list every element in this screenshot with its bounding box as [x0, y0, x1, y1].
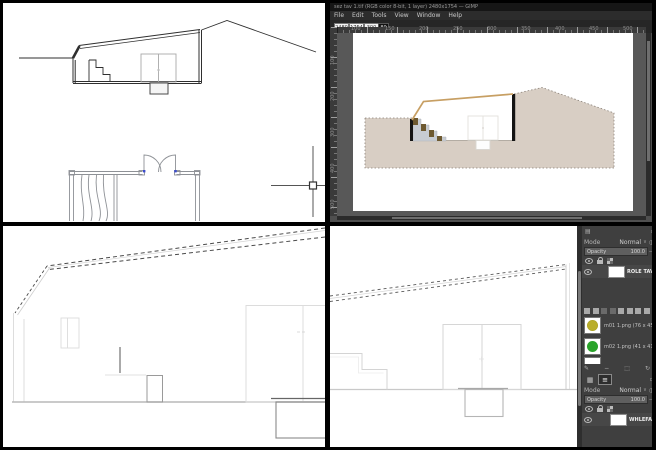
- brush-item-2[interactable]: m02 1.png (41 x 41): [582, 336, 652, 357]
- small-block: [147, 376, 163, 403]
- hscroll-thumb[interactable]: [392, 217, 582, 219]
- colored-section-drawing: [353, 33, 633, 211]
- vscroll-thumb[interactable]: [647, 41, 650, 161]
- layer-row-1[interactable]: ROLE TAV 1.p: [582, 265, 652, 278]
- brush-item-1[interactable]: m01 1.png (76 x 45): [582, 315, 652, 336]
- zoomed-canvas[interactable]: [330, 226, 577, 447]
- opacity-value: 100.0: [631, 397, 645, 403]
- ruler-label: 200: [419, 27, 429, 32]
- ruler-label: 300: [487, 27, 497, 32]
- section-outline: [19, 21, 316, 84]
- plan-wall-left: [70, 172, 74, 222]
- layer-visibility-icon[interactable]: [584, 268, 592, 275]
- wall-niche: [61, 318, 79, 348]
- lower-layer-icon[interactable]: [610, 308, 616, 314]
- dock-header: ▤ ▫: [582, 226, 652, 237]
- mode-row-2: Mode Normal ∨ ◑: [582, 385, 652, 395]
- view-tabs: ▦ ≡ ▫: [582, 374, 652, 385]
- ruler-label: 250: [453, 27, 463, 32]
- zoom-building-lines: [330, 263, 577, 417]
- door-outline: [468, 116, 498, 140]
- new-layer-icon[interactable]: [584, 308, 590, 314]
- ruler-label: 100: [330, 55, 336, 65]
- menu-tools[interactable]: Tools: [368, 11, 391, 20]
- lock-icon[interactable]: [597, 260, 603, 264]
- menu-file[interactable]: File: [330, 11, 348, 20]
- open-as-image-icon[interactable]: ⬚: [624, 365, 630, 373]
- menu-view[interactable]: View: [390, 11, 412, 20]
- right-wall: [199, 30, 202, 83]
- plan-view: [69, 155, 200, 221]
- outline-drawing: [3, 226, 325, 447]
- mode-dropdown[interactable]: Normal: [619, 387, 641, 394]
- zoomed-drawing: [330, 226, 577, 447]
- mode-row-1: Mode Normal ∨ ◑: [582, 237, 652, 247]
- ruler-label: 300: [330, 127, 336, 137]
- entry-step: [150, 83, 168, 94]
- opacity-label: Opacity: [587, 249, 606, 255]
- panel-menu-icon[interactable]: ▫: [651, 228, 652, 236]
- canvas-area[interactable]: [337, 33, 646, 216]
- entry-step-rect: [276, 402, 325, 438]
- opacity-decrease-icon[interactable]: −: [648, 248, 652, 255]
- door-rect: [246, 306, 325, 403]
- brush-name: m02 1.png (41 x 41): [604, 344, 652, 350]
- ruler-label: 400: [330, 163, 336, 173]
- roof-line-outer: [79, 30, 200, 46]
- ruler-label: 500: [623, 27, 633, 32]
- section-stairs: [89, 60, 110, 82]
- new-group-icon[interactable]: [593, 308, 599, 314]
- entry-step-zoom: [465, 390, 503, 417]
- layer-row-2[interactable]: WHLEFAX 1.p: [582, 413, 652, 426]
- building-light-lines: [12, 306, 325, 439]
- four-view-architecture-workspace: { "colors": { "ground_tan": "#d8cec4", "…: [0, 0, 656, 450]
- cad-view: [3, 3, 325, 222]
- opacity-slider[interactable]: Opacity 100.0: [584, 247, 648, 256]
- layer-action-buttons: [582, 306, 652, 315]
- dock-empty-space: [582, 278, 652, 306]
- roof-dashed-zoom: [330, 265, 566, 302]
- layer-visibility-icon[interactable]: [584, 416, 592, 423]
- delete-layer-icon[interactable]: [644, 308, 650, 314]
- left-bent-wall: [73, 46, 80, 58]
- refresh-brushes-icon[interactable]: ↻: [645, 365, 650, 373]
- cad-drawing: [3, 3, 325, 222]
- ruler-label: 100: [351, 27, 361, 32]
- menu-help[interactable]: Help: [444, 11, 466, 20]
- layers-panel-icon[interactable]: ▤: [585, 228, 591, 236]
- crosshair-cursor: [271, 146, 325, 217]
- menu-window[interactable]: Window: [413, 11, 445, 20]
- plan-wall-right: [196, 172, 200, 222]
- layer-thumbnail: [610, 414, 627, 426]
- tab-menu-icon[interactable]: ▫: [650, 376, 652, 384]
- floor-line: [73, 82, 202, 84]
- duplicate-layer-icon[interactable]: [618, 308, 624, 314]
- image-editor-window: sez tav 1.tif (RGB color 8-bit, 1 layer)…: [330, 3, 652, 222]
- ruler-label: 200: [330, 91, 336, 101]
- entry-step-white: [476, 141, 490, 150]
- layer-name: ROLE TAV 1.p: [627, 269, 652, 275]
- list-view-tab[interactable]: ≡: [598, 374, 612, 385]
- grid-view-tab[interactable]: ▦: [584, 375, 596, 384]
- visibility-icon[interactable]: [585, 405, 593, 412]
- plan-wall-left-run: [69, 172, 143, 175]
- window-title: sez tav 1.tif (RGB color 8-bit, 1 layer)…: [330, 3, 652, 11]
- plan-wall-mid: [114, 175, 117, 222]
- opacity-value: 100.0: [631, 249, 645, 255]
- hill-peak-line: [202, 21, 317, 53]
- brush-name: m01 1.png (76 x 45): [604, 323, 652, 329]
- menu-bar: File Edit Tools View Window Help: [330, 11, 652, 20]
- lock-alpha-icon[interactable]: [607, 406, 613, 412]
- pickbox: [310, 182, 317, 189]
- edit-brush-icon[interactable]: ✎: [584, 365, 589, 373]
- raise-layer-icon[interactable]: [601, 308, 607, 314]
- opacity-slider[interactable]: Opacity 100.0: [584, 395, 648, 404]
- hinge-dot-right: [174, 170, 176, 172]
- layer-thumbnail: [608, 266, 625, 278]
- opacity-decrease-icon[interactable]: −: [648, 396, 652, 403]
- visibility-icon[interactable]: [585, 257, 593, 264]
- layer-name: WHLEFAX 1.p: [629, 417, 652, 423]
- horizontal-scrollbar[interactable]: [337, 216, 646, 220]
- anchor-layer-icon[interactable]: [627, 308, 633, 314]
- brush-footer-buttons: ✎ − ⬚ ↻: [582, 363, 652, 374]
- dock-panels: ▤ ▫ Mode Normal ∨ ◑ Opacity 100.0 − ROLE…: [582, 226, 652, 447]
- lock-alpha-icon[interactable]: [607, 258, 613, 264]
- opacity-row-1: Opacity 100.0 −: [582, 247, 652, 256]
- menu-edit[interactable]: Edit: [348, 11, 368, 20]
- merge-layer-icon[interactable]: [635, 308, 641, 314]
- roof-line-inner: [80, 33, 200, 49]
- brush-thumbnail-olive: [584, 317, 601, 334]
- canvas-scroll-thumb[interactable]: [578, 271, 581, 406]
- hinge-dot-left: [143, 170, 145, 172]
- section-door: [141, 54, 176, 82]
- opacity-row-2: Opacity 100.0 −: [582, 395, 652, 404]
- mode-label: Mode: [584, 239, 600, 246]
- ruler-label: 500: [330, 199, 336, 209]
- left-wall: [73, 58, 75, 83]
- vector-outline-view: [3, 226, 325, 447]
- right-wall-black: [512, 94, 515, 141]
- brush-item-3-partial[interactable]: [582, 357, 652, 363]
- ruler-label: 350: [521, 27, 531, 32]
- lock-row-2: [582, 404, 652, 413]
- mode-label: Mode: [584, 387, 600, 394]
- vertical-scrollbar[interactable]: [646, 33, 651, 216]
- mode-switch-icon[interactable]: ◑: [649, 387, 652, 394]
- mode-switch-icon[interactable]: ◑: [649, 239, 652, 246]
- ruler-label: 150: [385, 27, 395, 32]
- plan-curved-stairs: [81, 175, 107, 221]
- lock-icon[interactable]: [597, 408, 603, 412]
- opacity-label: Opacity: [587, 397, 606, 403]
- ruler-label: 450: [589, 27, 599, 32]
- remove-brush-icon[interactable]: −: [604, 365, 609, 373]
- image-canvas[interactable]: [353, 33, 633, 211]
- ruler-label: 400: [555, 27, 565, 32]
- chevron-down-icon[interactable]: ∨: [643, 387, 647, 393]
- chevron-down-icon[interactable]: ∨: [643, 239, 647, 245]
- roof-dashed-lines: [15, 228, 325, 315]
- brush-thumbnail-green: [584, 338, 601, 355]
- door-center-mark: [479, 357, 484, 362]
- left-wall-black: [410, 119, 413, 141]
- lock-row-1: [582, 256, 652, 265]
- editor-workspace-zoomed: ▤ ▫ Mode Normal ∨ ◑ Opacity 100.0 − ROLE…: [330, 226, 652, 447]
- mode-dropdown[interactable]: Normal: [619, 239, 641, 246]
